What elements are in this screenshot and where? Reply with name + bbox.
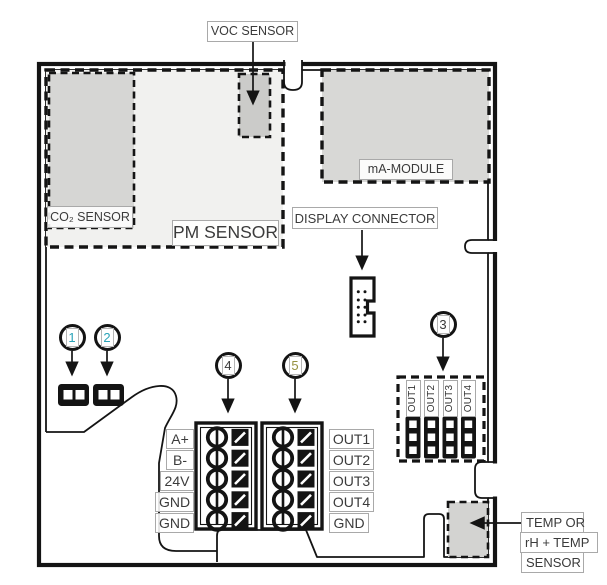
callout-3: 3 [430, 311, 457, 338]
temp-sensor-region [448, 502, 488, 557]
ma-module-label: mA-MODULE [359, 159, 453, 180]
jumper-1 [58, 384, 89, 406]
voc-sensor-region [239, 74, 270, 137]
jumper-2 [93, 384, 124, 406]
terminal-block-right [262, 423, 322, 530]
jumper-label-out3: OUT3 [443, 380, 458, 417]
terminal-label-out4: OUT4 [329, 492, 374, 512]
callout-2-number: 2 [101, 328, 114, 347]
top-notch-gap [286, 60, 302, 69]
jumper-label-out4: OUT4 [461, 380, 476, 417]
callout-3-number: 3 [437, 315, 450, 334]
temp-sensor-label-line1: TEMP OR [521, 512, 584, 533]
jumper-label-out1: OUT1 [406, 380, 421, 417]
callout-4-number: 4 [222, 356, 235, 375]
callout-1-number: 1 [66, 328, 79, 347]
temp-sensor-label-line3: SENSOR [521, 552, 584, 573]
pm-sensor-label: PM SENSOR [172, 220, 279, 246]
terminal-label-gnd-2: GND [155, 513, 194, 533]
terminal-label-gnd-1: GND [155, 492, 194, 512]
terminal-label-b-minus: B- [166, 450, 194, 470]
terminal-label-24v: 24V [160, 471, 194, 491]
pcb-diagram: 1 2 3 4 5 VOC SENSOR CO₂ SENSOR PM SENSO… [0, 0, 607, 585]
terminal-label-out3: OUT3 [329, 471, 374, 491]
terminal-label-out2: OUT2 [329, 450, 374, 470]
terminal-label-out1: OUT1 [329, 429, 374, 449]
callout-5-number: 5 [289, 356, 302, 375]
board-graphics [0, 0, 607, 585]
callout-1: 1 [59, 324, 86, 351]
callout-2: 2 [94, 324, 121, 351]
temp-sensor-label-line2: rH + TEMP [520, 532, 598, 553]
voc-sensor-label: VOC SENSOR [207, 21, 298, 42]
display-connector-label: DISPLAY CONNECTOR [292, 207, 438, 229]
callout-4: 4 [215, 352, 242, 379]
jumper-label-out2: OUT2 [424, 380, 439, 417]
callout-5: 5 [282, 352, 309, 379]
co2-sensor-region [49, 73, 134, 228]
co2-sensor-label: CO₂ SENSOR [47, 206, 133, 228]
terminal-label-a-plus: A+ [166, 429, 194, 449]
right-slot-gap [490, 464, 499, 497]
right-notch-gap [490, 241, 499, 252]
terminal-block-left [196, 423, 256, 530]
terminal-label-gnd-out: GND [329, 513, 369, 533]
